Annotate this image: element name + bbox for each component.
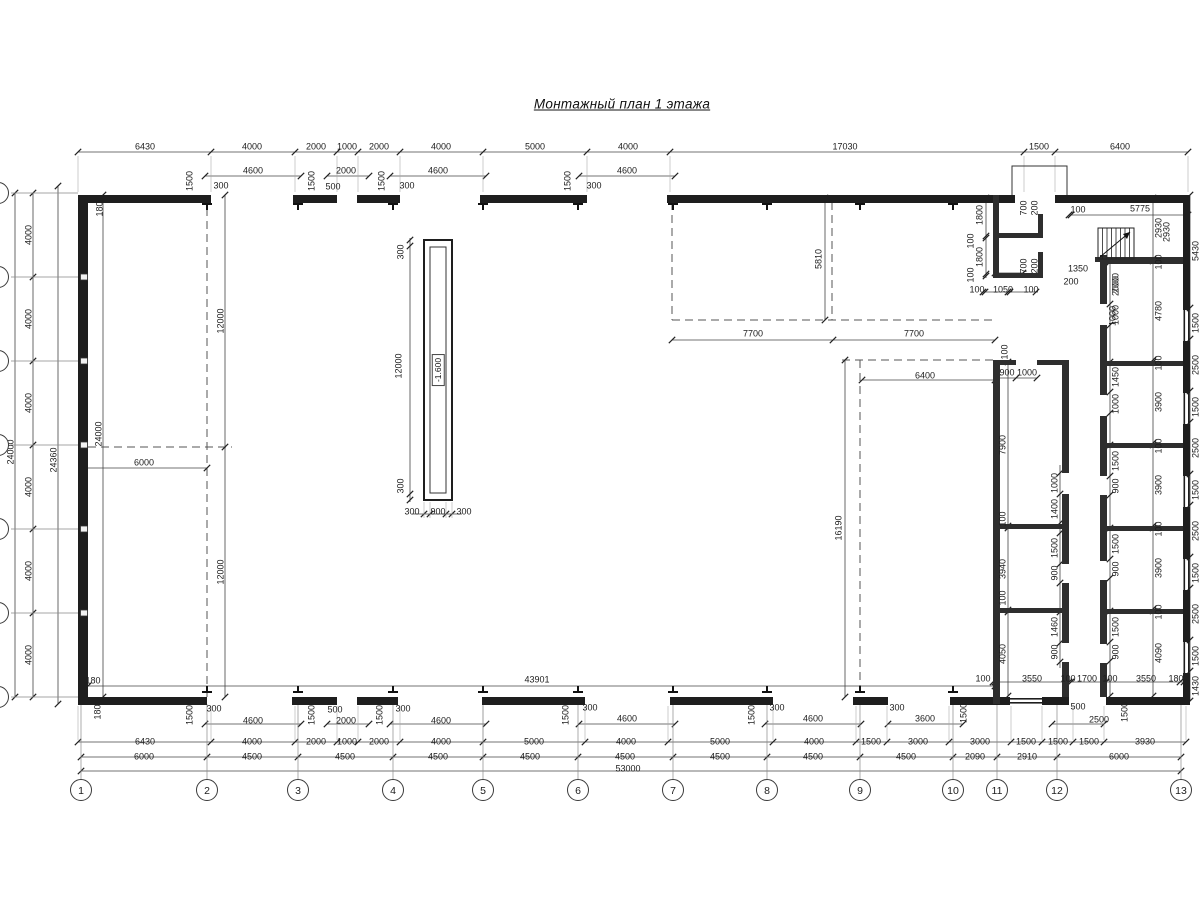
dim-label: 1000 (337, 738, 357, 747)
pit-level-label: -1.600 (432, 354, 445, 386)
dim-label: 1500 (1051, 538, 1060, 558)
dim-label: 1500 (1192, 480, 1200, 500)
dim-label: 1000 (1112, 305, 1121, 325)
dim-label: 300 (206, 705, 221, 714)
dim-label: 1460 (1051, 617, 1060, 637)
dim-label: 300 (213, 182, 228, 191)
dim-label: 4500 (615, 753, 635, 762)
dim-label: 4500 (335, 753, 355, 762)
dim-label: 12000 (395, 353, 404, 378)
dim-label: 300 (399, 182, 414, 191)
grid-bubble-10: 10 (942, 779, 964, 801)
grid-row-bubble-7 (0, 686, 9, 708)
dim-label: 3550 (1136, 675, 1156, 684)
dim-label: 1500 (562, 705, 571, 725)
grid-bubble-4: 4 (382, 779, 404, 801)
dim-label: 4000 (242, 738, 262, 747)
grid-bubble-5: 5 (472, 779, 494, 801)
dim-label: 1500 (1112, 617, 1121, 637)
dim-label: 180 (94, 704, 103, 719)
dim-label: 6400 (915, 372, 935, 381)
dim-label: 24000 (95, 421, 104, 446)
grid-bubble-12: 12 (1046, 779, 1068, 801)
dim-label: 300 (456, 508, 471, 517)
dim-label: 4000 (431, 143, 451, 152)
dim-label: 200 (1031, 200, 1040, 215)
dim-label: 180 (1168, 675, 1183, 684)
dim-label: 4600 (617, 715, 637, 724)
dim-label: 12000 (217, 559, 226, 584)
dim-label: 300 (889, 704, 904, 713)
dim-label: 2930 (1163, 222, 1172, 242)
dim-label: 900 (1051, 565, 1060, 580)
dim-label: 180 (85, 677, 100, 686)
floor-plan-drawing: Монтажный план 1 этажа 64304000200010002… (0, 0, 1200, 900)
dim-label: 100 (1023, 286, 1038, 295)
dim-label: 1500 (1192, 646, 1200, 666)
dim-label: 3600 (915, 715, 935, 724)
dim-label: 900 (1051, 644, 1060, 659)
dim-label: 2500 (1192, 604, 1200, 624)
dim-label: 2000 (369, 143, 389, 152)
dim-label: 700 (1020, 258, 1029, 273)
dim-label: 1500 (1048, 738, 1068, 747)
dim-label: 2500 (1089, 716, 1109, 725)
dim-label: 2500 (1192, 438, 1200, 458)
grid-bubble-2: 2 (196, 779, 218, 801)
dim-label: 1400 (1051, 499, 1060, 519)
dim-label: 1350 (1068, 265, 1088, 274)
dim-label: 100 (1155, 604, 1164, 619)
grid-row-bubble-3 (0, 350, 9, 372)
dim-label: 4600 (243, 717, 263, 726)
dim-label: 1500 (1121, 702, 1130, 722)
dim-label: 4600 (243, 167, 263, 176)
dim-label: 3000 (970, 738, 990, 747)
dim-label: 4600 (428, 167, 448, 176)
grid-bubble-6: 6 (567, 779, 589, 801)
dim-label: 7700 (743, 330, 763, 339)
dim-label: 500 (327, 706, 342, 715)
dim-label: 1800 (976, 247, 985, 267)
dim-label: 4500 (710, 753, 730, 762)
dim-label: 2000 (336, 717, 356, 726)
dim-label: 4000 (618, 143, 638, 152)
dim-label: 500 (325, 183, 340, 192)
dim-label: 3000 (908, 738, 928, 747)
dim-label: 1500 (748, 705, 757, 725)
dim-label: 1500 (960, 703, 969, 723)
dim-label: 300 (397, 478, 406, 493)
dim-label: 4050 (999, 644, 1008, 664)
dim-label: 1500 (1079, 738, 1099, 747)
dim-label: 100 (1102, 675, 1117, 684)
dim-label: 100 (1060, 675, 1075, 684)
dim-label: 200 (1063, 278, 1078, 287)
dim-label: 6000 (134, 753, 154, 762)
dim-label: 1500 (376, 705, 385, 725)
dim-label: 4000 (242, 143, 262, 152)
dim-label: 1500 (308, 705, 317, 725)
dim-label: 2000 (369, 738, 389, 747)
dim-label: 5000 (524, 738, 544, 747)
dim-label: 300 (404, 508, 419, 517)
dim-label: 6430 (135, 143, 155, 152)
dim-label: 100 (1155, 355, 1164, 370)
dim-label: 1500 (1192, 397, 1200, 417)
dim-label: 4500 (242, 753, 262, 762)
dim-label: 4000 (25, 393, 34, 413)
dim-label: 100 (975, 675, 990, 684)
dim-label: 4000 (25, 309, 34, 329)
grid-bubble-11: 11 (986, 779, 1008, 801)
grid-bubble-3: 3 (287, 779, 309, 801)
dim-label: 100 (1155, 254, 1164, 269)
grid-row-bubble-2 (0, 266, 9, 288)
dim-label: 300 (586, 182, 601, 191)
dimension-labels-layer: 6430400020001000200040005000400017030150… (0, 0, 1200, 900)
dim-label: 300 (769, 704, 784, 713)
grid-bubble-13: 13 (1170, 779, 1192, 801)
dim-label: 1500 (1192, 563, 1200, 583)
dim-label: 3940 (999, 559, 1008, 579)
dim-label: 1500 (308, 171, 317, 191)
dim-label: 180 (96, 201, 105, 216)
dim-label: 100 (1155, 521, 1164, 536)
dim-label: 1500 (1029, 143, 1049, 152)
grid-bubble-1: 1 (70, 779, 92, 801)
dim-label: 900 (1112, 478, 1121, 493)
dim-label: 6430 (135, 738, 155, 747)
dim-label: 1430 (1192, 676, 1200, 696)
dim-label: 4500 (896, 753, 916, 762)
grid-bubble-7: 7 (662, 779, 684, 801)
dim-label: 3900 (1155, 475, 1164, 495)
dim-label: 1000 (1017, 369, 1037, 378)
dim-label: 1700 (1077, 675, 1097, 684)
dim-label: 700 (1020, 200, 1029, 215)
dim-label: 300 (582, 704, 597, 713)
dim-label: 3900 (1155, 558, 1164, 578)
dim-label: 3900 (1155, 392, 1164, 412)
dim-label: 1500 (186, 705, 195, 725)
dim-label: 100 (967, 267, 976, 282)
dim-label: 6400 (1110, 143, 1130, 152)
dim-label: 2000 (1112, 273, 1121, 293)
dim-label: 4090 (1155, 643, 1164, 663)
dim-label: 4000 (616, 738, 636, 747)
dim-label: 4000 (25, 645, 34, 665)
dim-label: 3550 (1022, 675, 1042, 684)
dim-label: 4600 (803, 715, 823, 724)
dim-label: 17030 (832, 143, 857, 152)
grid-bubble-8: 8 (756, 779, 778, 801)
dim-label: 1500 (186, 171, 195, 191)
dim-label: 4000 (25, 477, 34, 497)
dim-label: 4000 (804, 738, 824, 747)
dim-label: 1500 (861, 738, 881, 747)
dim-label: 53000 (615, 765, 640, 774)
dim-label: 1500 (1192, 313, 1200, 333)
dim-label: 2000 (306, 738, 326, 747)
dim-label: 6000 (134, 459, 154, 468)
dim-label: 100 (1070, 206, 1085, 215)
dim-label: 900 (1112, 644, 1121, 659)
dim-label: 43901 (524, 676, 549, 685)
dim-label: 4500 (520, 753, 540, 762)
dim-label: 7700 (904, 330, 924, 339)
dim-label: 100 (969, 286, 984, 295)
dim-label: 12000 (217, 308, 226, 333)
grid-bubble-9: 9 (849, 779, 871, 801)
dim-label: 2090 (965, 753, 985, 762)
dim-label: 4600 (617, 167, 637, 176)
dim-label: 1050 (993, 286, 1013, 295)
dim-label: 900 (1112, 561, 1121, 576)
dim-label: 2910 (1017, 753, 1037, 762)
dim-label: 300 (397, 244, 406, 259)
dim-label: 1500 (1016, 738, 1036, 747)
dim-label: 5810 (815, 249, 824, 269)
dim-label: 1500 (1112, 451, 1121, 471)
dim-label: 5775 (1130, 205, 1150, 214)
dim-label: 24360 (50, 447, 59, 472)
dim-label: 4000 (25, 561, 34, 581)
dim-label: 900 (430, 508, 445, 517)
dim-label: 1450 (1112, 367, 1121, 387)
dim-label: 5430 (1192, 241, 1200, 261)
dim-label: 4000 (431, 738, 451, 747)
dim-label: 1500 (564, 171, 573, 191)
dim-label: 1000 (1051, 473, 1060, 493)
dim-label: 4500 (428, 753, 448, 762)
dim-label: 4600 (431, 717, 451, 726)
dim-label: 100 (999, 590, 1008, 605)
dim-label: 4000 (25, 225, 34, 245)
dim-label: 3930 (1135, 738, 1155, 747)
grid-row-bubble-1 (0, 182, 9, 204)
dim-label: 500 (1070, 703, 1085, 712)
dim-label: 100 (1155, 438, 1164, 453)
dim-label: 2500 (1192, 355, 1200, 375)
dim-label: 2000 (336, 167, 356, 176)
dim-label: 1000 (337, 143, 357, 152)
grid-row-bubble-5 (0, 518, 9, 540)
dim-label: 100 (1001, 344, 1010, 359)
dim-label: 1800 (976, 205, 985, 225)
dim-label: 100 (999, 511, 1008, 526)
dim-label: 900 (999, 369, 1014, 378)
dim-label: 4500 (803, 753, 823, 762)
dim-label: 300 (395, 705, 410, 714)
dim-label: 16190 (835, 515, 844, 540)
dim-label: 5000 (525, 143, 545, 152)
dim-label: 2500 (1192, 521, 1200, 541)
dim-label: 1500 (1112, 534, 1121, 554)
dim-label: 7900 (999, 435, 1008, 455)
dim-label: 2000 (306, 143, 326, 152)
dim-label: 1500 (378, 171, 387, 191)
dim-label: 4780 (1155, 301, 1164, 321)
dim-label: 1000 (1112, 394, 1121, 414)
dim-label: 6000 (1109, 753, 1129, 762)
dim-label: 5000 (710, 738, 730, 747)
dim-label: 2930 (1155, 218, 1164, 238)
grid-row-bubble-6 (0, 602, 9, 624)
dim-label: 200 (1031, 258, 1040, 273)
